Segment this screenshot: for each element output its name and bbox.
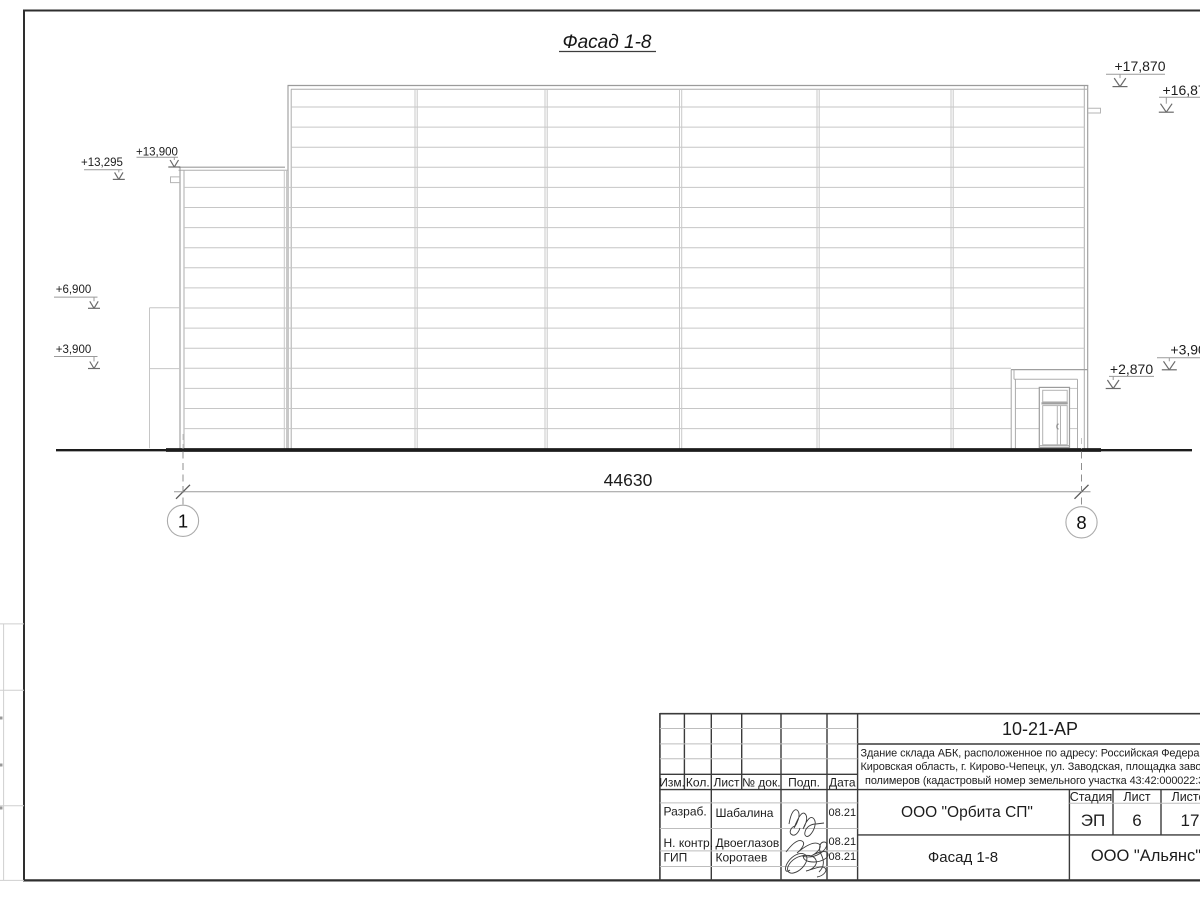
svg-text:Изм.: Изм. xyxy=(659,775,685,789)
svg-text:полимеров (кадастровый номер з: полимеров (кадастровый номер земельного … xyxy=(865,775,1200,787)
svg-text:+13,900: +13,900 xyxy=(136,146,178,158)
svg-text:1: 1 xyxy=(178,510,188,531)
svg-text:Фасад 1-8: Фасад 1-8 xyxy=(928,849,998,866)
svg-text:Лист: Лист xyxy=(713,775,740,789)
svg-text:17: 17 xyxy=(1181,811,1200,830)
svg-text:Коротаев: Коротаев xyxy=(716,851,768,865)
svg-text:+3,900: +3,900 xyxy=(56,344,92,356)
svg-text:08.21: 08.21 xyxy=(829,851,857,863)
svg-text:Шабалина: Шабалина xyxy=(716,806,774,820)
svg-text:Кировская область, г. Кирово-Ч: Кировская область, г. Кирово-Чепецк, ул.… xyxy=(861,761,1200,773)
svg-text:Листов: Листов xyxy=(1171,790,1200,804)
svg-text:+2,870: +2,870 xyxy=(1110,361,1153,377)
svg-text:+6,900: +6,900 xyxy=(56,284,92,296)
svg-text:Двоеглазов: Двоеглазов xyxy=(716,836,780,850)
svg-text:Здание склада АБК, расположенн: Здание склада АБК, расположенное по адре… xyxy=(861,748,1200,760)
svg-text:8: 8 xyxy=(1076,512,1086,533)
svg-text:+16,870: +16,870 xyxy=(1163,82,1200,98)
svg-text:Фасад 1-8: Фасад 1-8 xyxy=(563,32,652,53)
svg-text:Подп.: Подп. xyxy=(788,775,820,789)
svg-text:Стадия: Стадия xyxy=(1070,790,1113,804)
svg-text:Кол.: Кол. xyxy=(686,775,710,789)
svg-text:10-21-АР: 10-21-АР xyxy=(1002,719,1078,739)
svg-text:Н. контр.: Н. контр. xyxy=(664,836,714,850)
svg-text:ГИП: ГИП xyxy=(664,851,688,865)
svg-text:+3,900: +3,900 xyxy=(1170,341,1200,357)
svg-text:+13,295: +13,295 xyxy=(81,157,123,169)
svg-text:ЭП: ЭП xyxy=(1081,811,1105,830)
svg-text:Разраб.: Разраб. xyxy=(664,805,707,819)
svg-text:Лист: Лист xyxy=(1123,790,1150,804)
svg-text:08.21: 08.21 xyxy=(829,807,857,819)
svg-text:08.21: 08.21 xyxy=(829,836,857,848)
svg-text:ООО "Орбита СП": ООО "Орбита СП" xyxy=(901,804,1033,821)
svg-text:Дата: Дата xyxy=(829,775,856,789)
svg-text:ООО "Альянс": ООО "Альянс" xyxy=(1091,847,1200,865)
svg-text:+17,870: +17,870 xyxy=(1115,58,1166,74)
svg-text:44630: 44630 xyxy=(604,470,653,490)
svg-text:6: 6 xyxy=(1132,811,1141,830)
svg-text:№ док.: № док. xyxy=(742,775,780,789)
